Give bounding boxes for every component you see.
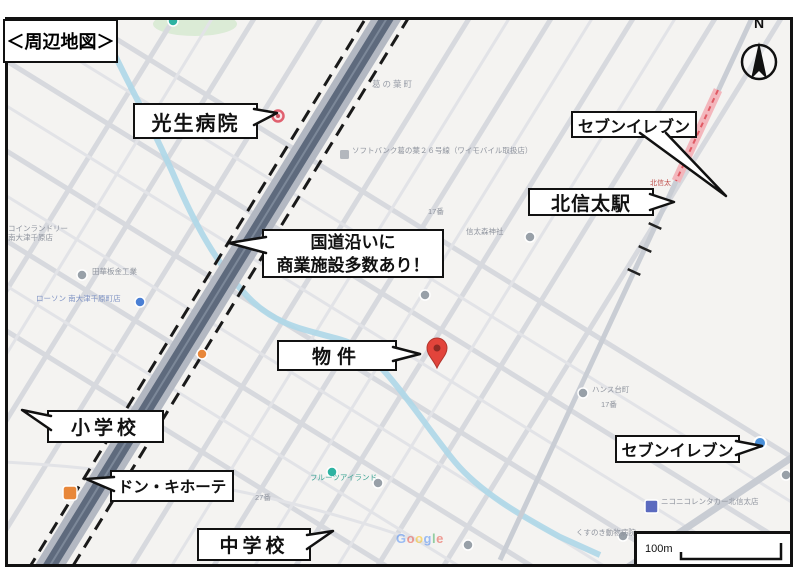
page-title: ＜周辺地図＞: [3, 19, 118, 63]
callout-seven-eleven-top: セブンイレブン: [571, 111, 697, 138]
route-note-line1: 国道沿いに: [311, 231, 396, 254]
callout-seven-eleven-bottom: セブンイレブン: [615, 435, 740, 463]
map-label-softbank: ソフトバンク葛の葉２６号線（ワイモバイル取扱店）: [352, 147, 532, 156]
scale-label: 100m: [645, 543, 673, 555]
callout-don-quijote: ドン・キホーテ: [110, 470, 234, 502]
map-label-block17a: 17番: [428, 208, 444, 217]
north-label: N: [733, 17, 785, 30]
map-label-shrine: 信太森神社: [466, 228, 504, 237]
seven-eleven-marker-icon: [754, 437, 766, 449]
map-label-vet: くすのき動物病院: [576, 529, 636, 538]
orange-poi-icon: [197, 349, 207, 359]
callout-kitashinoda-station: 北信太駅: [528, 188, 654, 216]
softbank-marker-icon: [340, 150, 349, 159]
map-label-laundry: コインランドリー 南大津千原店: [8, 225, 68, 242]
park-marker-icon: [185, 17, 201, 19]
map-label-sheetmetal: 田華板金工業: [92, 268, 137, 277]
north-arrow-icon: N: [733, 17, 785, 89]
map-label-rentacar: ニコニコレンタカー北信太店: [661, 498, 759, 507]
teal-poi-icon: [168, 17, 178, 26]
callout-route-note: 国道沿いに 商業施設多数あり！: [262, 229, 444, 278]
map-label-block17b: 17番: [601, 401, 617, 410]
hospital-marker-icon: [273, 111, 284, 122]
map-label-lawson: ローソン 南大津千原町店: [36, 295, 121, 304]
callout-junior-high-school: 中学校: [197, 528, 311, 561]
callout-hospital: 光生病院: [133, 103, 258, 139]
rentacar-marker-icon: [645, 500, 658, 513]
map-label-town: 葛の葉町: [372, 80, 414, 89]
callout-elementary-school: 小学校: [47, 410, 164, 443]
google-watermark: Google: [396, 531, 444, 546]
scale-bar-icon: [677, 538, 789, 564]
map-label-hansu: ハンス台町: [592, 386, 629, 395]
donki-marker-icon: [63, 486, 77, 500]
lawson-marker-icon: [135, 297, 145, 307]
callout-property: 物件: [277, 340, 397, 371]
map-label-fruit: フルーツアイランド: [310, 474, 377, 483]
scale-box: 100m: [634, 531, 793, 567]
route-note-line2: 商業施設多数あり！: [277, 254, 430, 277]
map-label-block27: 27番: [255, 494, 271, 503]
